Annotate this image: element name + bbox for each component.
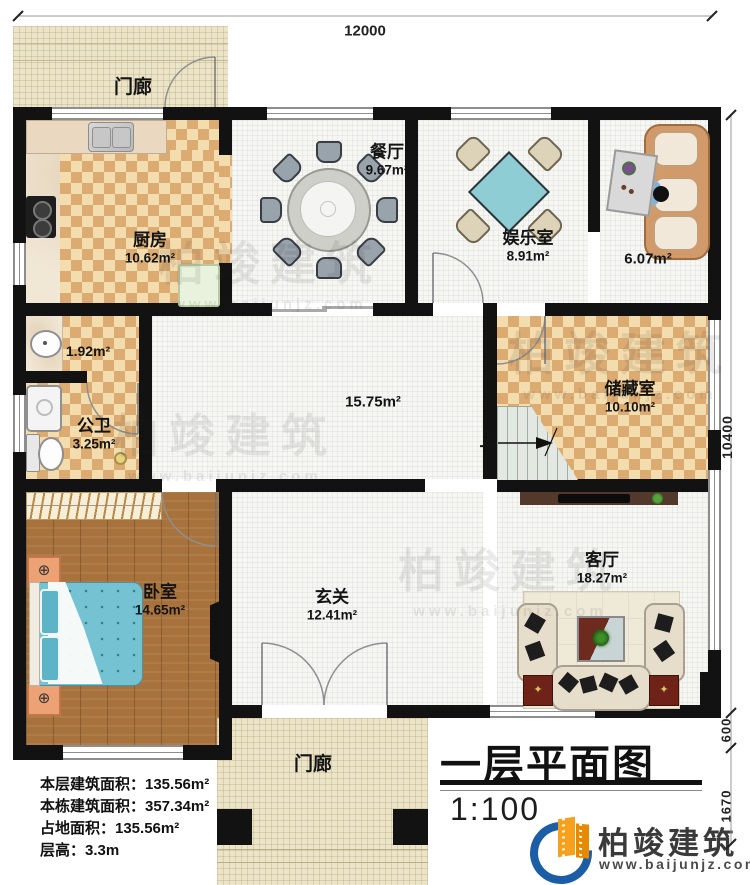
plan-title-scale: 1:100 bbox=[450, 791, 540, 827]
pillow bbox=[40, 589, 60, 635]
area-stats: 本层建筑面积：135.56m² 本栋建筑面积：357.34m² 占地面积：135… bbox=[40, 774, 209, 862]
bedroom-tv bbox=[210, 601, 220, 663]
porch-top-step-line bbox=[13, 60, 228, 61]
tv bbox=[558, 494, 630, 503]
washing-machine bbox=[26, 385, 62, 432]
floor-drain bbox=[114, 452, 127, 465]
wall-foyer-bottom-1 bbox=[232, 705, 262, 718]
wall-hall-bottom bbox=[216, 479, 425, 492]
coffee-table bbox=[577, 616, 625, 662]
dining-chair bbox=[316, 141, 342, 163]
room-label-porch-bottom: 门廊 bbox=[294, 754, 332, 776]
wall-entertainment-sideroom bbox=[588, 107, 600, 232]
wall-kitchen-dining-lower bbox=[219, 263, 232, 303]
room-area: 6.07m² bbox=[624, 250, 672, 267]
throw-pillow bbox=[579, 675, 597, 693]
stat-line: 占地面积：135.56m² bbox=[40, 818, 209, 840]
stat-line: 本栋建筑面积：357.34m² bbox=[40, 796, 209, 818]
porch-top-step-line bbox=[13, 43, 228, 44]
plan-title: 一层平面图 1:100 bbox=[440, 731, 750, 828]
wall-dining-entertainment bbox=[405, 107, 418, 316]
room-label-kitchen: 厨房 10.62m² bbox=[125, 230, 175, 265]
room-label-storage: 储藏室 10.10m² bbox=[605, 379, 656, 414]
sink-basin bbox=[112, 127, 131, 148]
dimension-right-main: 10400 bbox=[719, 415, 735, 459]
stairs-up-text: 上 bbox=[480, 431, 497, 451]
throw-pillow bbox=[524, 612, 546, 634]
room-name: 娱乐室 bbox=[503, 228, 554, 248]
wall-kitchen-dining-upper bbox=[219, 107, 232, 155]
sofa-right bbox=[644, 603, 685, 682]
room-name: 卧室 bbox=[135, 582, 185, 602]
room-name: 公卫 bbox=[73, 416, 116, 436]
wall-bedroom-right bbox=[219, 479, 232, 760]
room-area: 8.91m² bbox=[503, 248, 554, 264]
room-area: 1.92m² bbox=[66, 343, 110, 359]
burner bbox=[33, 219, 52, 238]
stove bbox=[26, 196, 56, 238]
floor-plan: ⊕ ⊕ ✦ ✦ bbox=[0, 0, 750, 885]
window-entertainment-top bbox=[451, 107, 551, 120]
porch-bottom-step-line bbox=[217, 849, 428, 850]
wall-storage-left-col bbox=[483, 303, 497, 380]
room-name: 餐厅 bbox=[366, 142, 409, 162]
wall-living-corner-col bbox=[700, 672, 721, 718]
wall-storage-left bbox=[483, 372, 497, 479]
throw-pillow bbox=[525, 641, 546, 662]
kitchen-sink bbox=[88, 122, 134, 152]
throw-pillow bbox=[654, 613, 674, 633]
sofa-main bbox=[551, 665, 651, 711]
wall-bath-divider bbox=[13, 371, 87, 383]
room-label-hallway: 15.75m² bbox=[345, 393, 401, 410]
throw-pillow bbox=[618, 674, 638, 694]
bed-headboard bbox=[29, 582, 40, 686]
decor-dots bbox=[621, 185, 627, 191]
room-label-entertainment: 娱乐室 8.91m² bbox=[503, 228, 554, 263]
room-area: 15.75m² bbox=[345, 393, 401, 410]
porch-pillar-right bbox=[393, 809, 428, 845]
dining-table bbox=[287, 168, 371, 252]
wall-foyer-bottom-2 bbox=[387, 705, 490, 718]
plan-title-text: 一层平面图 bbox=[440, 742, 655, 788]
hallway-floor bbox=[152, 316, 483, 479]
window-living-right bbox=[708, 470, 721, 650]
room-name: 门廊 bbox=[294, 754, 332, 776]
room-label-laundry: 1.92m² bbox=[66, 343, 110, 359]
washer-door bbox=[36, 399, 53, 416]
throw-pillow bbox=[653, 640, 675, 662]
side-table: ✦ bbox=[523, 675, 553, 706]
window-bath-left bbox=[13, 395, 26, 452]
room-label-bedroom: 卧室 14.65m² bbox=[135, 582, 185, 617]
sideroom-table bbox=[606, 149, 658, 217]
room-label-bathroom: 公卫 3.25m² bbox=[73, 416, 116, 451]
room-area: 9.67m² bbox=[366, 162, 409, 178]
room-name: 厨房 bbox=[125, 230, 175, 250]
dining-chair bbox=[260, 197, 282, 223]
window-storage-right bbox=[708, 320, 721, 430]
wall-mid-3 bbox=[545, 303, 721, 316]
pillow bbox=[40, 636, 60, 682]
side-table: ✦ bbox=[649, 675, 679, 706]
logo-building-icon bbox=[576, 823, 589, 858]
porch-bottom-step-line bbox=[217, 862, 428, 863]
sofa-cushion bbox=[654, 132, 698, 166]
room-label-living: 客厅 18.27m² bbox=[577, 550, 627, 585]
room-label-dining: 餐厅 9.67m² bbox=[366, 142, 409, 177]
dimension-top: 12000 bbox=[344, 23, 386, 40]
plant bbox=[593, 630, 609, 646]
dining-table-center bbox=[320, 201, 336, 217]
sink-basin bbox=[92, 127, 111, 148]
room-area: 14.65m² bbox=[135, 602, 185, 618]
room-area: 12.41m² bbox=[307, 607, 357, 623]
porch-bottom-floor bbox=[217, 718, 428, 885]
flower-vase bbox=[621, 161, 637, 177]
dining-chair bbox=[316, 257, 342, 279]
fridge bbox=[178, 264, 220, 307]
window-kitchen-left bbox=[13, 243, 26, 285]
foyer-floor bbox=[232, 492, 483, 705]
wall-mid-2 bbox=[373, 303, 433, 316]
room-name: 客厅 bbox=[577, 550, 627, 570]
wall-utility-right bbox=[139, 316, 152, 479]
stairs-up-label: 上 bbox=[480, 431, 497, 451]
wall-storage-bottom bbox=[497, 479, 721, 492]
throw-pillow bbox=[599, 673, 619, 693]
brand-url: www.baijunjz.com bbox=[599, 856, 750, 874]
nightstand: ⊕ bbox=[27, 684, 61, 716]
room-label-porch-top: 门廊 bbox=[114, 77, 152, 99]
sliding-door-leaf bbox=[322, 306, 373, 309]
person-head bbox=[653, 186, 669, 202]
sink-drain bbox=[43, 341, 47, 345]
room-area: 3.25m² bbox=[73, 436, 116, 452]
room-area: 10.62m² bbox=[125, 250, 175, 266]
stat-line: 本层建筑面积：135.56m² bbox=[40, 774, 209, 796]
plant-small bbox=[652, 493, 663, 504]
kitchen-dining-pass bbox=[219, 155, 232, 263]
burner bbox=[33, 201, 52, 220]
laundry-sink bbox=[30, 330, 62, 358]
window-dining-top bbox=[267, 107, 373, 120]
porch-pillar-left bbox=[217, 809, 252, 845]
toilet-bowl bbox=[38, 437, 64, 471]
brand-url-text: www.baijunjz.com bbox=[599, 856, 750, 872]
window-kitchen-top bbox=[52, 107, 163, 120]
throw-pillow bbox=[558, 672, 579, 693]
stat-line: 层高：3.3m bbox=[40, 840, 209, 862]
wall-mid-1 bbox=[13, 303, 272, 316]
wardrobe bbox=[26, 492, 162, 520]
room-name: 储藏室 bbox=[605, 379, 656, 399]
sliding-door-leaf bbox=[272, 309, 327, 312]
tv-cabinet bbox=[520, 492, 678, 505]
sliding-door bbox=[272, 303, 373, 316]
room-name: 玄关 bbox=[307, 587, 357, 607]
room-area: 10.10m² bbox=[605, 399, 656, 415]
wall-bedroom-top-1 bbox=[13, 479, 162, 492]
dining-chair bbox=[376, 197, 398, 223]
room-label-side-room: 6.07m² bbox=[624, 250, 672, 267]
room-name: 门廊 bbox=[114, 77, 152, 99]
window-bedroom-bottom bbox=[63, 745, 183, 760]
room-label-foyer: 玄关 12.41m² bbox=[307, 587, 357, 622]
sofa-cushion bbox=[654, 216, 698, 250]
room-area: 18.27m² bbox=[577, 570, 627, 586]
